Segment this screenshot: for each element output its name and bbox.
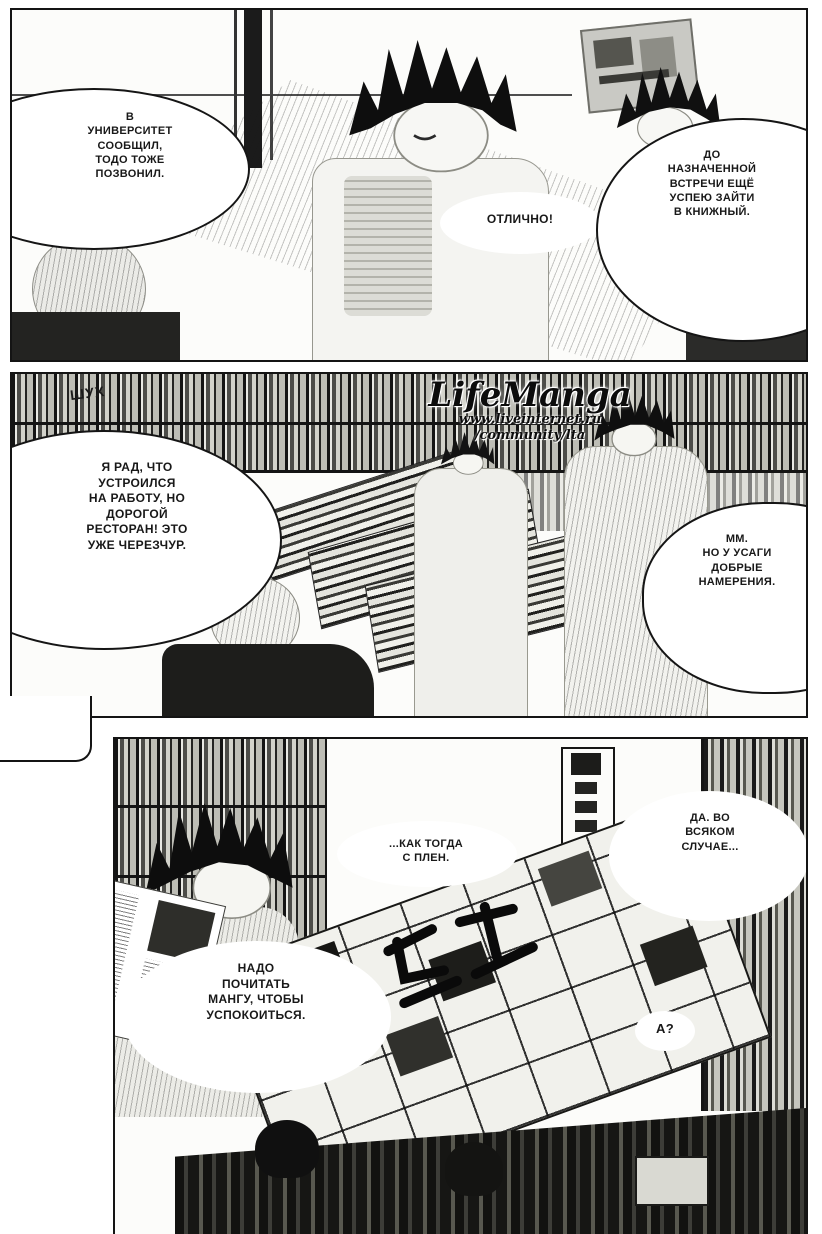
speech-text-otlichno: ОТЛИЧНО! [452, 212, 588, 228]
watermark-community: /community/lta [400, 428, 660, 444]
speech-text-university: В УНИВЕРСИТЕТ СООБЩИЛ, ТОДО ТОЖЕ ПОЗВОНИ… [30, 110, 230, 181]
speech-text-usagi: ММ. НО У УСАГИ ДОБРЫЕ НАМЕРЕНИЯ. [662, 532, 808, 589]
crowd-head-2 [445, 1142, 503, 1196]
sign-header-block [571, 753, 601, 775]
character-center-hair [342, 28, 522, 178]
speech-text-huh: А? [643, 1021, 687, 1038]
manga-page: В УНИВЕРСИТЕТ СООБЩИЛ, ТОДО ТОЖЕ ПОЗВОНИ… [0, 0, 822, 1234]
panel-top: В УНИВЕРСИТЕТ СООБЩИЛ, ТОДО ТОЖЕ ПОЗВОНИ… [10, 8, 808, 362]
manga-cover-gray-1 [538, 851, 602, 907]
character-center-plaid-shirt [344, 176, 432, 316]
crowd-head-1 [255, 1120, 319, 1178]
character-blond-jacket [162, 644, 374, 718]
speech-text-recall: ...КАК ТОГДА С ПЛЕН. [351, 837, 501, 866]
manga-title-strokes [361, 878, 564, 1034]
speech-text-read-manga: НАДО ПОЧИТАТЬ МАНГУ, ЧТОБЫ УСПОКОИТЬСЯ. [151, 961, 361, 1023]
panel-bottom: ...КАК ТОГДА С ПЛЕН. ДА. ВО ВСЯКОМ СЛУЧА… [113, 737, 808, 1234]
watermark-logo: LifeManga [400, 378, 660, 412]
panel-middle: LifeManga www.liveinternet.ru /community… [10, 372, 808, 718]
thought-text-bookstore: ДО НАЗНАЧЕННОЙ ВСТРЕЧИ ЕЩЁ УСПЕЮ ЗАЙТИ В… [622, 148, 802, 219]
character-mid-body [414, 468, 528, 718]
speech-text-job: Я РАД, ЧТО УСТРОИЛСЯ НА РАБОТУ, НО ДОРОГ… [22, 460, 252, 554]
sfx-shuh: ШУХ [69, 384, 106, 402]
gutter-bubble-corner [0, 696, 92, 762]
manga-cover-dark-4 [640, 926, 708, 986]
character-left-collar [12, 312, 180, 360]
watermark: LifeManga www.liveinternet.ru /community… [400, 378, 660, 443]
crowd-cover-light [635, 1156, 709, 1206]
speech-text-anyway: ДА. ВО ВСЯКОМ СЛУЧАЕ... [635, 811, 785, 854]
